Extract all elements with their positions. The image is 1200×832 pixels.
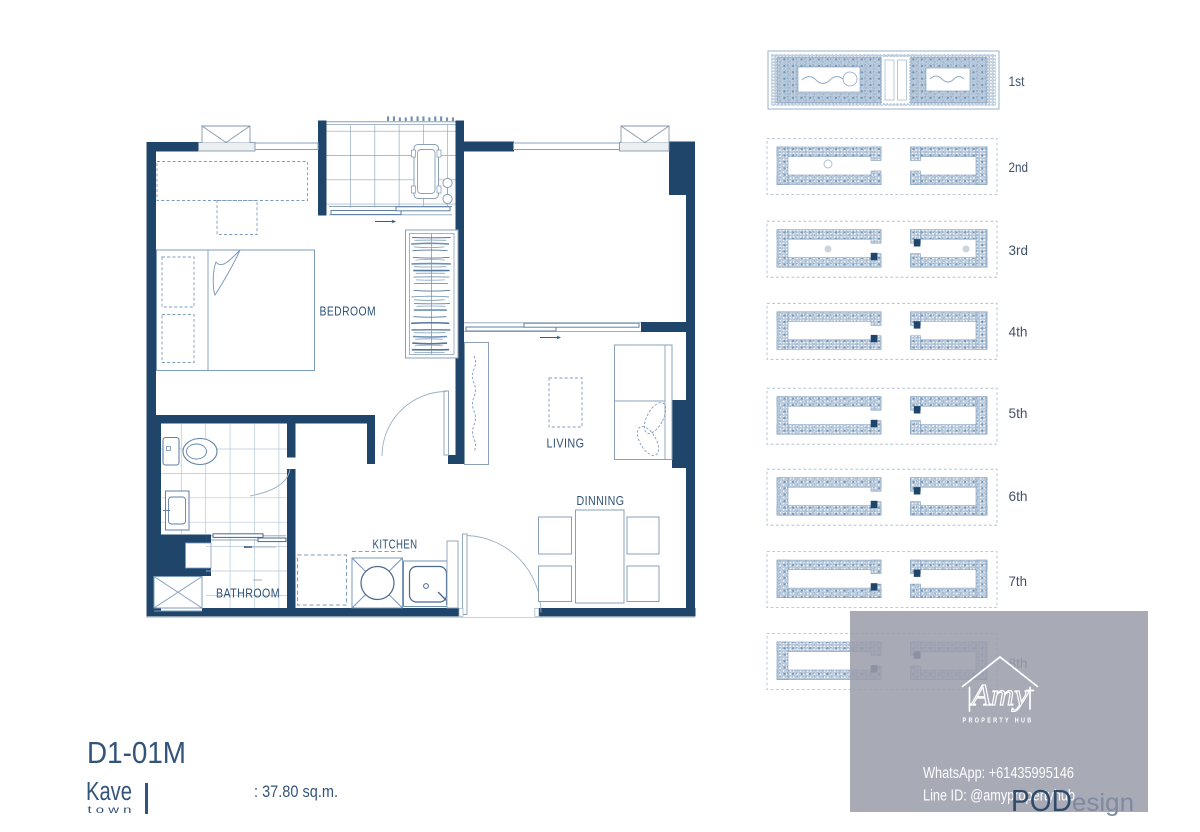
svg-text:BEDROOM: BEDROOM: [320, 305, 377, 319]
svg-text:BATHROOM: BATHROOM: [216, 587, 280, 601]
svg-text:7th: 7th: [1009, 573, 1028, 589]
svg-text:4th: 4th: [1009, 324, 1028, 340]
svg-text:t o w n: t o w n: [88, 805, 132, 816]
svg-text:POD: POD: [1011, 784, 1072, 818]
svg-text:LIVING: LIVING: [547, 437, 585, 451]
svg-text:: 37.80 sq.m.: : 37.80 sq.m.: [254, 782, 338, 801]
svg-text:2nd: 2nd: [1009, 159, 1029, 175]
svg-text:esign: esign: [1072, 789, 1134, 817]
svg-text:6th: 6th: [1009, 488, 1028, 504]
svg-text:DINNING: DINNING: [577, 494, 625, 508]
svg-text:Amy: Amy: [969, 677, 1028, 712]
svg-text:KITCHEN: KITCHEN: [373, 538, 418, 552]
svg-text:3rd: 3rd: [1009, 242, 1029, 258]
svg-text:PROPERTY HUB: PROPERTY HUB: [963, 718, 1034, 725]
svg-text:5th: 5th: [1009, 405, 1028, 421]
svg-text:WhatsApp: +61435995146: WhatsApp: +61435995146: [923, 765, 1074, 782]
svg-text:Kave: Kave: [86, 778, 132, 806]
svg-text:1st: 1st: [1009, 73, 1025, 89]
svg-text:D1-01M: D1-01M: [87, 736, 186, 770]
